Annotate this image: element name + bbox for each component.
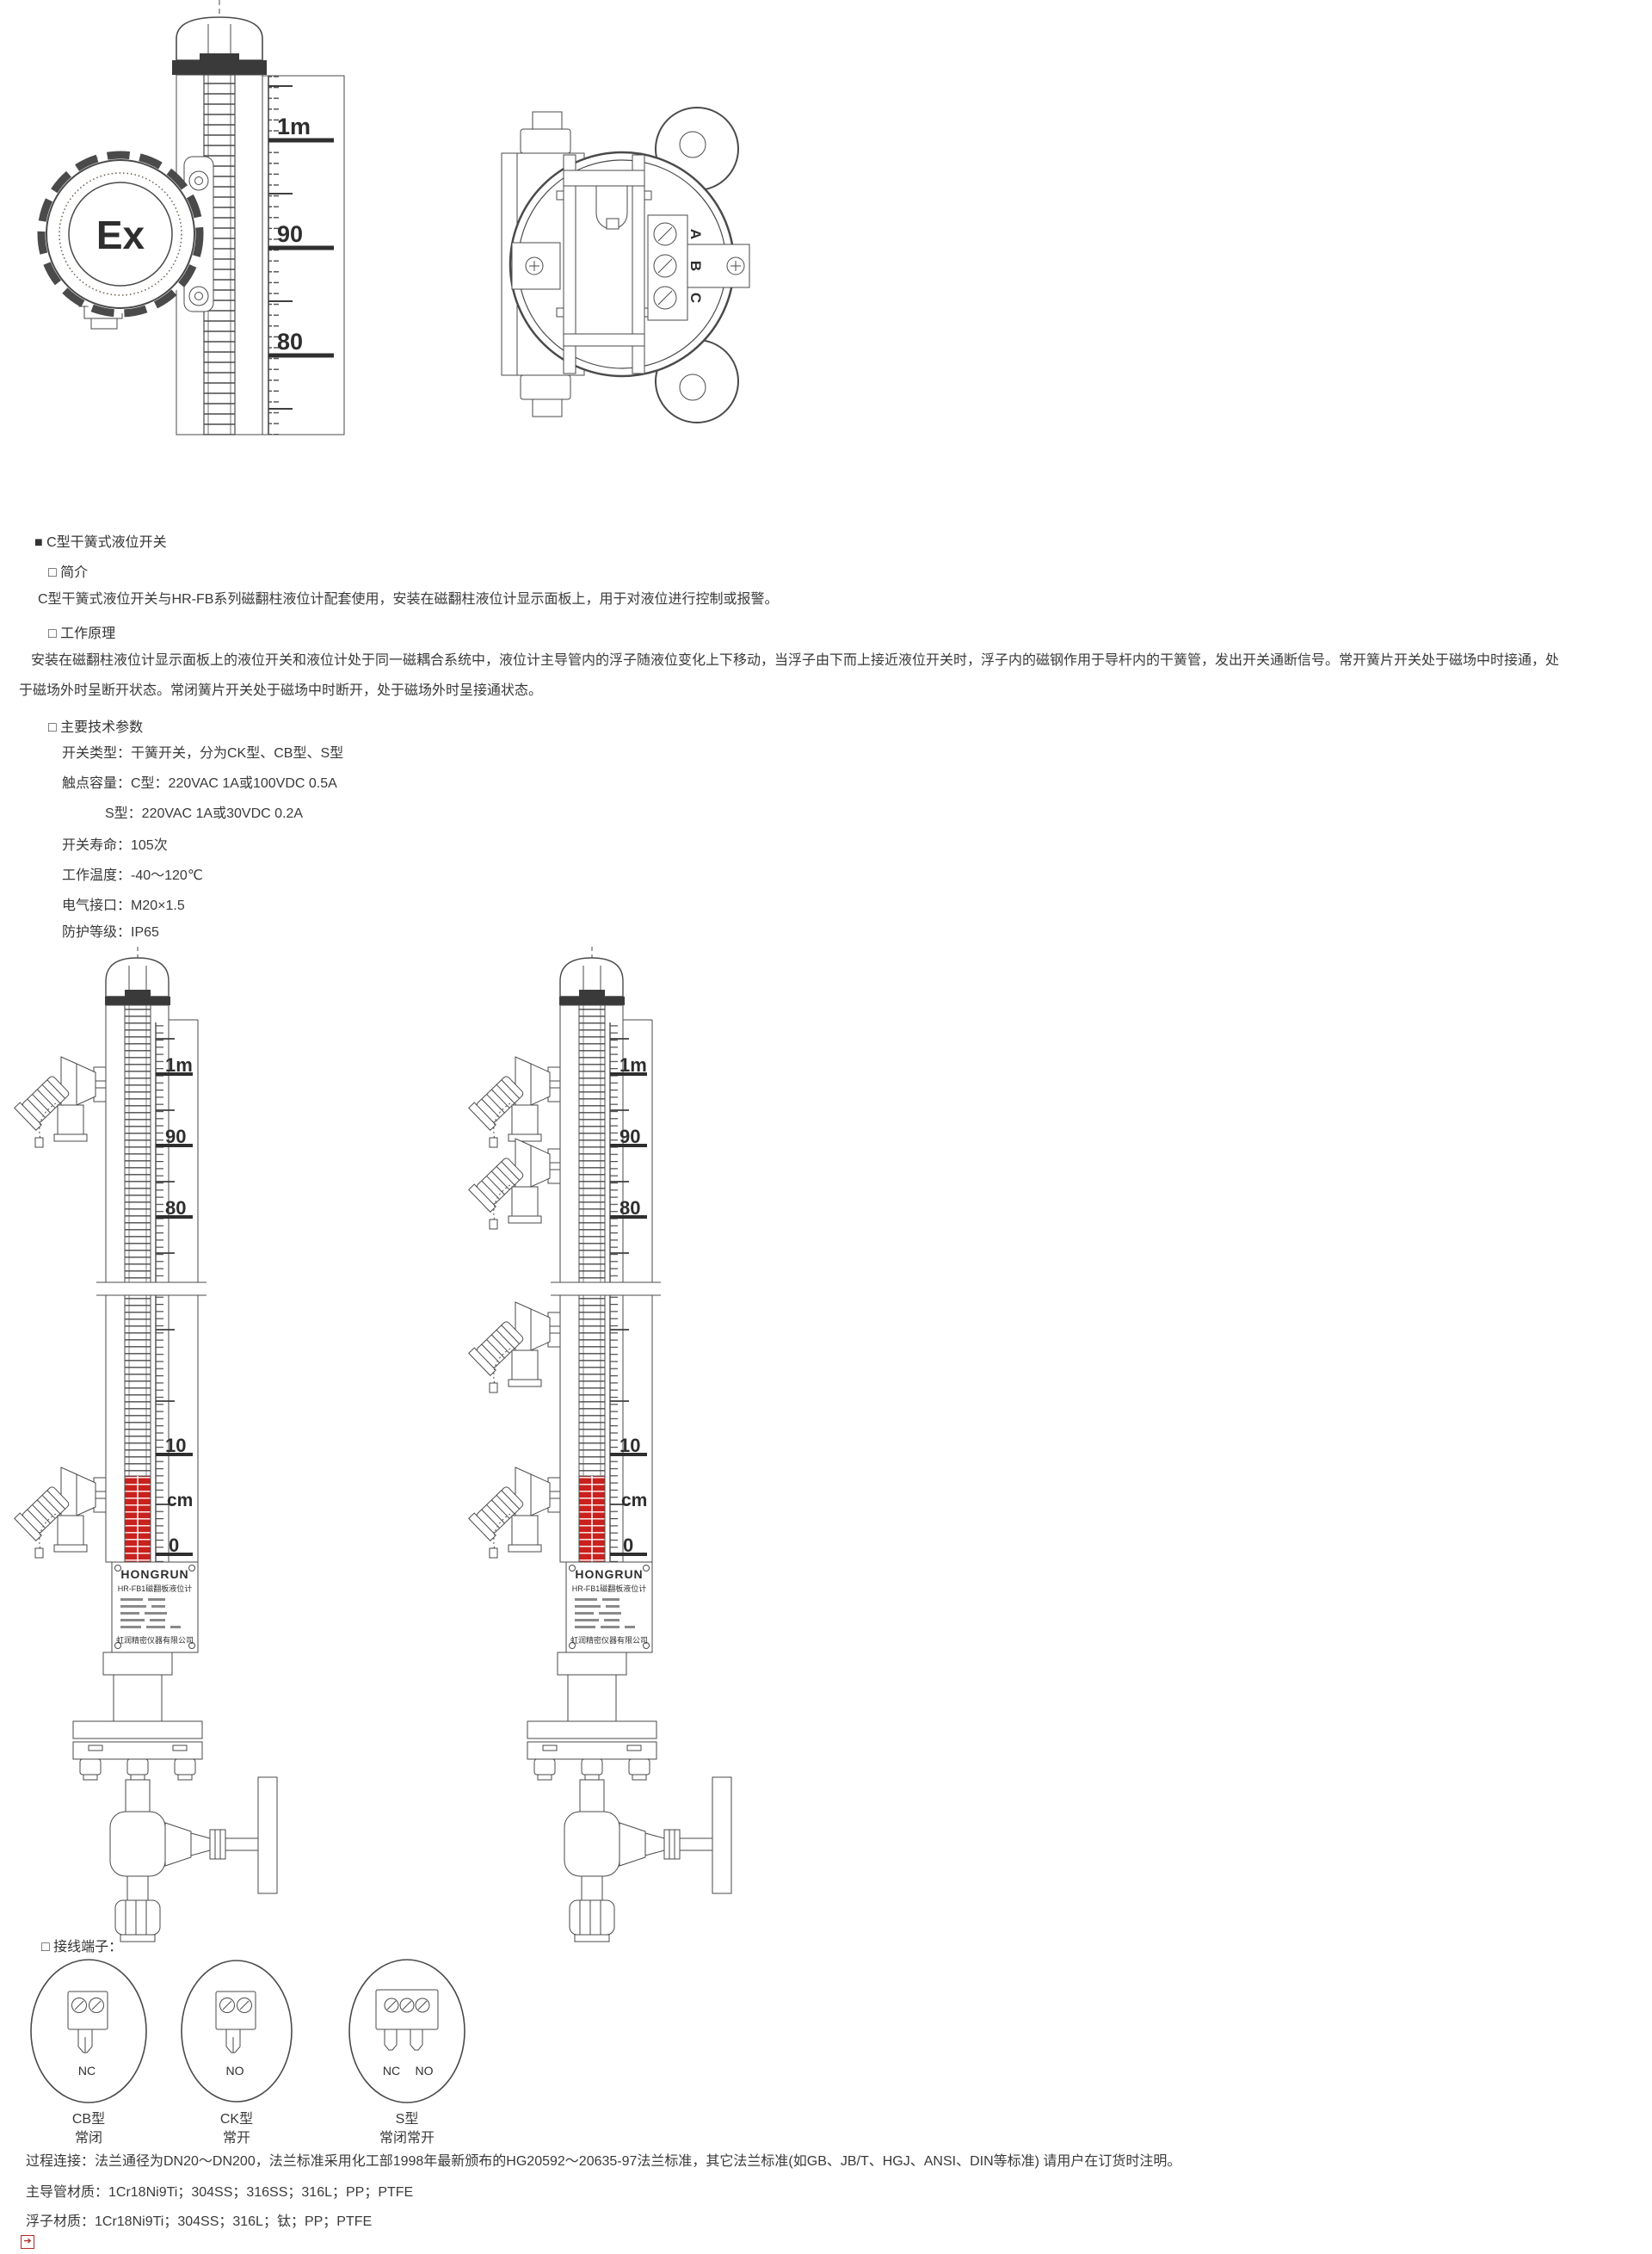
section-title: ■ C型干簧式液位开关: [34, 530, 167, 551]
ex-proof-housing: Ex: [41, 155, 200, 313]
reed-switch-4: [469, 1467, 560, 1558]
reed-switch-3: [469, 1302, 560, 1393]
terminal-c-label: C: [687, 293, 704, 303]
drawing-terminal-types: NC NO NC NO: [13, 1955, 482, 2115]
param-switch-type: 开关类型：干簧开关，分为CK型、CB型、S型: [62, 745, 343, 763]
principle-heading: □ 工作原理: [48, 621, 115, 642]
terminal-b-label: B: [687, 261, 704, 271]
intro-heading: □ 简介: [48, 560, 88, 581]
ck-no-label: NO: [226, 2064, 244, 2078]
ck-mode-caption: 常开: [185, 2126, 288, 2146]
param-switch-life: 开关寿命：105次: [62, 837, 168, 855]
param-contact-rating: 触点容量：C型：220VAC 1A或100VDC 0.5A: [62, 775, 337, 793]
gauge-top-band: [172, 60, 267, 75]
terminal-a-label: A: [687, 229, 704, 239]
drawing-switch-internal-view: A B C: [478, 50, 839, 442]
drawing-gauge-with-ex-switch: 1m 90 80 Ex: [9, 0, 353, 527]
param-contact-rating-s: S型：220VAC 1A或30VDC 0.2A: [105, 806, 303, 823]
s-type-caption: S型: [355, 2107, 459, 2127]
terminal-circle-ck: NO: [182, 1961, 292, 2102]
s-mode-caption: 常闭常开: [355, 2126, 459, 2146]
terminal-circle-s: NC NO: [349, 1960, 465, 2103]
cb-nc-label: NC: [78, 2064, 96, 2078]
s-no-label: NO: [416, 2064, 434, 2078]
drawing-level-gauge-right: [454, 947, 747, 1979]
process-connection-line: 过程连接：法兰通径为DN20～DN200，法兰标准采用化工部1998年最新颁布的…: [26, 2153, 1180, 2171]
page-end-marker-icon: ➔: [21, 2235, 34, 2249]
ex-mark: Ex: [96, 213, 145, 257]
ck-type-caption: CK型: [185, 2107, 288, 2127]
s-nc-label: NC: [383, 2064, 400, 2078]
scale-label-90: 90: [277, 221, 303, 247]
param-protection: 防护等级：IP65: [62, 924, 159, 942]
reed-switch-lower: [15, 1467, 106, 1558]
param-electrical-port: 电气接口：M20×1.5: [62, 898, 185, 915]
reed-switch-upper: [15, 1057, 106, 1147]
drawing-level-gauge-left: 1m 90 80 10 cm 0 HONGRUN HR-FB1磁翻板液位计: [0, 947, 293, 1979]
terminals-heading: □ 接线端子：: [41, 1935, 122, 1955]
scale-label-1m: 1m: [277, 114, 311, 139]
principle-line2: 于磁场外时呈断开状态。常闭簧片开关处于磁场中时断开，处于磁场外时呈接通状态。: [19, 682, 542, 700]
cb-mode-caption: 常闭: [37, 2126, 140, 2146]
float-material-line: 浮子材质：1Cr18Ni9Ti；304SS；316L；钛；PP；PTFE: [26, 2214, 372, 2231]
cb-type-caption: CB型: [37, 2107, 140, 2127]
param-work-temp: 工作温度：-40～120℃: [62, 868, 203, 885]
terminal-circle-cb: NC: [31, 1960, 146, 2103]
params-heading: □ 主要技术参数: [48, 715, 143, 736]
intro-text: C型干簧式液位开关与HR-FB系列磁翻柱液位计配套使用，安装在磁翻柱液位计显示面…: [38, 591, 778, 608]
scale-label-80: 80: [277, 329, 303, 355]
principle-line1: 安装在磁翻柱液位计显示面板上的液位开关和液位计处于同一磁耦合系统中，液位计主导管…: [31, 652, 1559, 670]
reed-switch-1: [469, 1057, 560, 1147]
tube-material-line: 主导管材质：1Cr18Ni9Ti；304SS；316SS；316L；PP；PTF…: [26, 2184, 413, 2202]
reed-switch-2: [469, 1139, 560, 1229]
